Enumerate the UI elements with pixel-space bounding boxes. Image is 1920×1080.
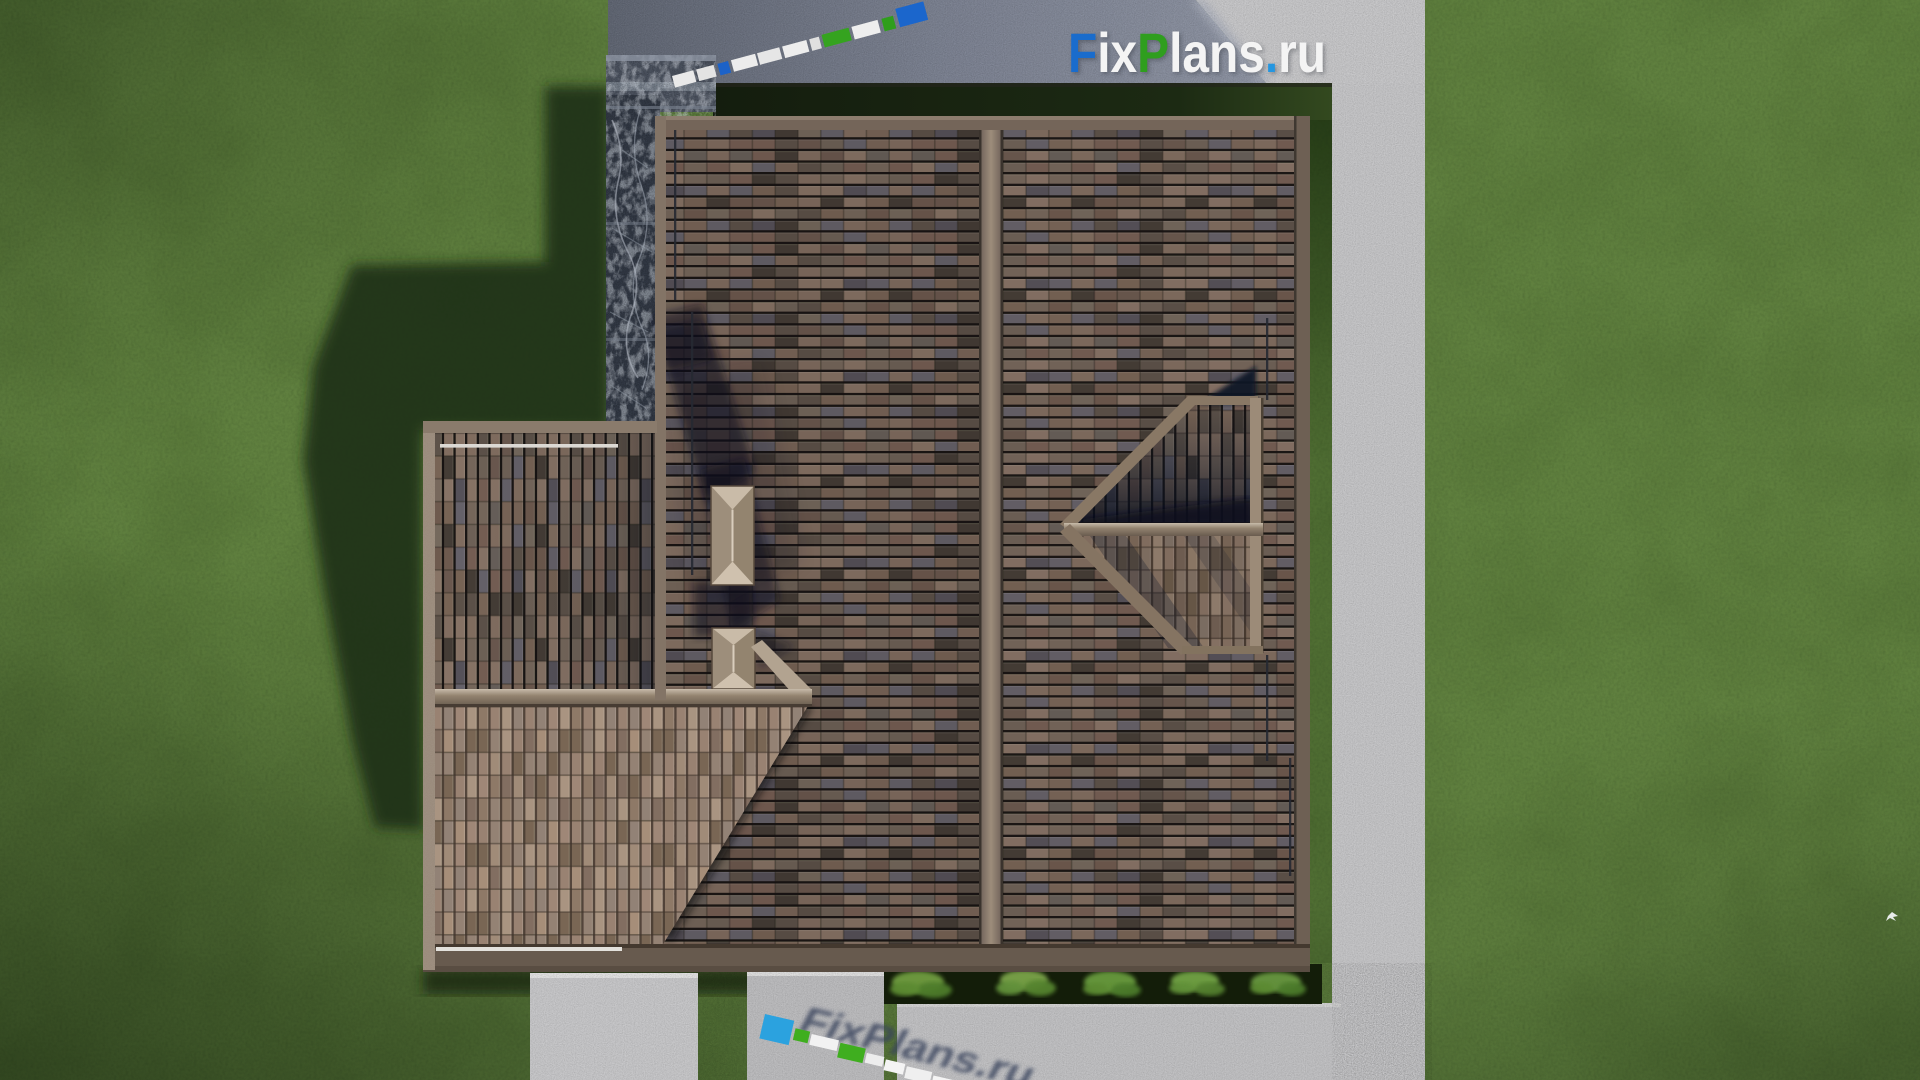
svg-text:FixPlans.ru: FixPlans.ru: [1068, 21, 1326, 84]
